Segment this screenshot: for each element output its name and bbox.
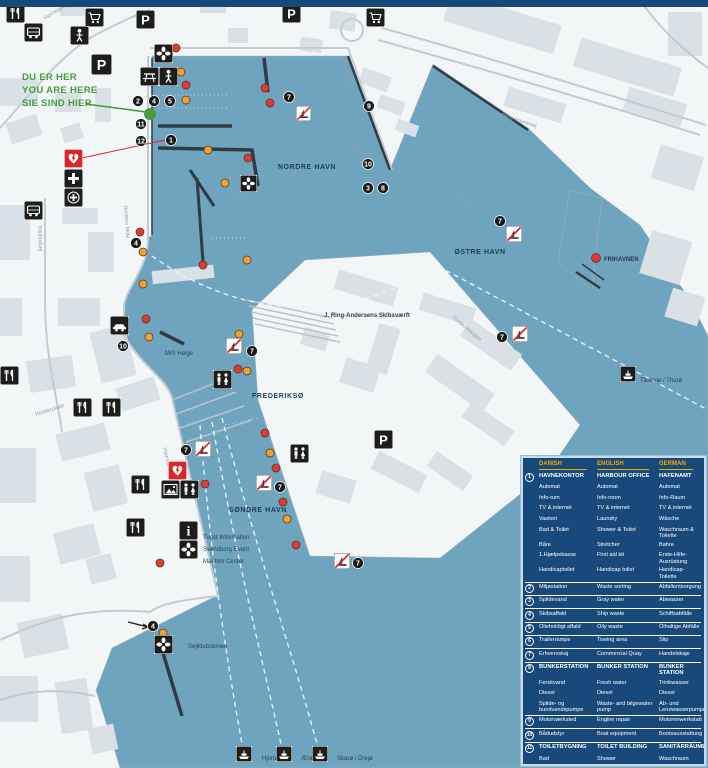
legend-header-german: GERMAN: [659, 461, 693, 470]
legend-row: 1.Hjælpekasse First aid kit Erste-Hilfe-…: [525, 551, 701, 566]
legend-cell-english: Automat: [597, 484, 657, 490]
ferry-icon: [312, 746, 328, 762]
legend-cell-english: HARBOUR OFFICE: [597, 473, 657, 479]
no-mooring-icon: [195, 441, 211, 457]
legend-cell-english: TV & internet: [597, 505, 657, 511]
legend-marker: 6: [525, 637, 534, 646]
legend-cell-english: Waste sorting: [597, 584, 657, 590]
harbour-icon: [240, 175, 257, 192]
legend-cell-german: Info-Raum: [659, 495, 701, 501]
legend-row: 7 Erhvervskaj Commercial Quay Handelskaj…: [525, 649, 701, 662]
legend-row: 1 HAVNEKONTOR HARBOUR OFFICE HAFENAMT: [525, 471, 701, 483]
legend-marker: 4: [525, 611, 534, 620]
marker-4: 4: [131, 238, 142, 249]
legend-row: 10 Bådudstyr Boat equipment Bootsausstat…: [525, 729, 701, 742]
label-tourist-info: Turist Information: [203, 535, 249, 541]
legend-cell-german: BUNKER STATION: [659, 664, 701, 677]
label-bergen: Bergen: [233, 194, 251, 200]
legend-row: Båre Stretcher Bahre: [525, 540, 701, 551]
legend-cell-german: Erste-Hilfe-Ausrüstung: [659, 552, 701, 565]
label-ferry-taasinge: Tåsinge / Thurø: [640, 377, 683, 384]
svg-text:5: 5: [168, 99, 172, 106]
legend-row: 3 Spildevand Gray water Abwasser: [525, 596, 701, 609]
first-aid-icon: [64, 169, 83, 188]
legend-row: 4 Skibsaffald Ship waste Schiffsabfälle: [525, 609, 701, 622]
restaurant-icon: [126, 518, 145, 537]
legend-cell-german: Diesel: [659, 690, 701, 696]
marker-4: 4: [148, 621, 159, 632]
restaurant-icon: [102, 398, 121, 417]
toilets-icon: [290, 444, 309, 463]
aed-icon: [168, 461, 187, 480]
label-ms-helge: M/S Helge: [165, 351, 194, 357]
viewpoint-icon: [161, 480, 180, 499]
legend-row: 9 Motorværksted Engine repair Motorenwer…: [525, 716, 701, 729]
legend-cell-danish: Olieholdigt affald: [539, 624, 595, 630]
svg-text:10: 10: [364, 162, 372, 169]
marker-7: 7: [497, 332, 508, 343]
legend-row: Bad & Toilet Shower & Toilet Waschraum &…: [525, 525, 701, 540]
svg-text:9: 9: [367, 104, 371, 111]
legend-cell-danish: Vaskeri: [539, 516, 595, 522]
marker-12: 12: [136, 136, 147, 147]
legend-cell-danish: Info-rum: [539, 495, 595, 501]
legend-header-danish: DANISH: [539, 461, 587, 470]
legend-cell-german: Ab- und Lenzwasserpumpe: [659, 701, 706, 714]
svg-text:8: 8: [381, 186, 385, 193]
legend-row: Bad Shower Waschraum: [525, 754, 701, 765]
legend-marker: 5: [525, 624, 534, 633]
legend-rows: 1 HAVNEKONTOR HARBOUR OFFICE HAFENAMT Au…: [525, 471, 701, 766]
legend-cell-english: Commercial Quay: [597, 651, 657, 657]
label-nordre-havn: NORDRE HAVN: [278, 164, 336, 171]
marker-4: 4: [149, 96, 160, 107]
legend: DANISH ENGLISH GERMAN 1 HAVNEKONTOR HARB…: [521, 456, 706, 766]
legend-row: Diesel Diesel Diesel: [525, 689, 701, 700]
legend-cell-german: Wäsche: [659, 516, 701, 522]
legend-cell-german: Handelskaje: [659, 651, 701, 657]
pedestrian-icon: [70, 26, 89, 45]
ferry-icon: [236, 746, 252, 762]
svg-text:11: 11: [137, 122, 145, 129]
legend-marker: 11: [525, 744, 534, 753]
legend-marker: 3: [525, 597, 534, 606]
legend-cell-english: Waste- and bilgewater pump: [597, 701, 657, 714]
legend-row: 2 Miljøstation Waste sorting Abfallentso…: [525, 583, 701, 596]
legend-row: Vaskeri Laundry Wäsche: [525, 515, 701, 526]
marker-2: 2: [133, 96, 144, 107]
svg-text:7: 7: [356, 561, 360, 568]
legend-cell-english: Stretcher: [597, 542, 657, 548]
legend-cell-english: TOILET BUILDING: [597, 744, 657, 750]
legend-header-english: ENGLISH: [597, 461, 649, 470]
parking-icon: [374, 430, 393, 449]
legend-cell-german: Handicap-Toilette: [659, 567, 701, 580]
marker-7: 7: [284, 92, 295, 103]
legend-cell-danish: Miljøstation: [539, 584, 595, 590]
svg-text:7: 7: [250, 349, 254, 356]
label-ferry-skaro: Skarø / Drejø: [337, 756, 373, 762]
you-are-here-dot: [144, 108, 156, 120]
label-ferry-aero: Ærø: [301, 756, 313, 762]
legend-cell-german: Slip: [659, 637, 701, 643]
legend-marker: 2: [525, 584, 534, 593]
bus-icon: [24, 201, 43, 220]
label-maritimt-center: Maritimt Center: [203, 559, 244, 565]
legend-header: DANISH ENGLISH GERMAN: [525, 460, 701, 471]
legend-cell-danish: BUNKERSTATION: [539, 664, 595, 670]
legend-cell-german: HAFENAMT: [659, 473, 701, 479]
label-frederikso: FREDERIKSØ: [252, 393, 304, 400]
legend-cell-german: Abwasser: [659, 597, 701, 603]
no-mooring-icon: [296, 106, 311, 121]
bus-icon: [24, 23, 43, 42]
legend-cell-german: Bahre: [659, 542, 701, 548]
legend-cell-german: Trinkwasser: [659, 680, 701, 686]
legend-cell-english: First aid kit: [597, 552, 657, 558]
svg-text:7: 7: [500, 335, 504, 342]
legend-cell-danish: Trailerrampe: [539, 637, 595, 643]
legend-marker: 8: [525, 664, 534, 673]
legend-row: Spilde- og bundvandspumpe Waste- and bil…: [525, 699, 701, 716]
label-skibsvaerft: J. Ring-Andersens Skibsværft: [324, 313, 410, 319]
legend-cell-english: Info-room: [597, 495, 657, 501]
top-bar: [0, 0, 708, 7]
svg-text:10: 10: [119, 344, 127, 351]
no-mooring-icon: [512, 326, 528, 342]
legend-cell-german: Waschraum: [659, 756, 701, 762]
svg-text:12: 12: [137, 139, 145, 146]
marker-10: 10: [118, 341, 129, 352]
picnic-icon: [140, 67, 159, 86]
marker-7: 7: [181, 445, 192, 456]
legend-cell-danish: TOILETBYGNING: [539, 744, 595, 750]
marker-3: 3: [363, 183, 374, 194]
legend-row: Toilet Toilet Toilette: [525, 765, 701, 766]
label-frihavnen: FRIHAVNEN: [604, 257, 639, 263]
legend-row: Handicaptoilet Handicap toilet Handicap-…: [525, 566, 701, 583]
playground-icon: [159, 67, 178, 86]
svg-text:DU ER HER: DU ER HER: [22, 72, 77, 83]
legend-cell-german: Motorenwerkstatt: [659, 717, 702, 723]
svg-text:4: 4: [151, 624, 155, 631]
svg-text:7: 7: [278, 485, 282, 492]
taxi-icon: [110, 316, 129, 335]
svg-text:YOU ARE HERE: YOU ARE HERE: [22, 85, 98, 96]
sailing-club-icon: [154, 635, 173, 654]
legend-marker: 7: [525, 651, 534, 660]
legend-row: Info-rum Info-room Info-Raum: [525, 494, 701, 505]
legend-cell-danish: Båre: [539, 542, 595, 548]
legend-cell-english: Oily waste: [597, 624, 657, 630]
legend-cell-danish: Motorværksted: [539, 717, 595, 723]
svg-text:1: 1: [169, 138, 173, 145]
legend-cell-german: Ölhaltige Abfälle: [659, 624, 701, 630]
legend-row: 5 Olieholdigt affald Oily waste Ölhaltig…: [525, 623, 701, 636]
legend-cell-danish: Handicaptoilet: [539, 567, 595, 573]
marker-7: 7: [275, 482, 286, 493]
label-svendborg-event: Svendborg Event: [203, 547, 249, 553]
legend-cell-danish: HAVNEKONTOR: [539, 473, 595, 479]
legend-marker: 1: [525, 473, 534, 482]
toilets-icon: [213, 370, 232, 389]
svg-text:SIE SIND HIER: SIE SIND HIER: [22, 98, 92, 109]
legend-cell-german: TV & internet: [659, 505, 701, 511]
aed-icon: [64, 149, 83, 168]
legend-cell-german: Waschraum & Toilette: [659, 527, 701, 540]
medical-icon: [64, 188, 83, 207]
marker-7: 7: [495, 216, 506, 227]
marker-5: 5: [165, 96, 176, 107]
legend-row: Automat Automat Automat: [525, 483, 701, 494]
legend-cell-german: SANITÄRRÄUME: [659, 744, 706, 750]
legend-marker: 9: [525, 717, 534, 726]
toilets-icon: [180, 480, 199, 499]
svg-text:7: 7: [498, 219, 502, 226]
marker-8: 8: [378, 183, 389, 194]
legend-cell-danish: Erhvervskaj: [539, 651, 595, 657]
legend-cell-english: BUNKER STATION: [597, 664, 657, 670]
svg-text:2: 2: [136, 99, 140, 106]
maritime-center-icon: [179, 540, 198, 559]
legend-cell-english: Fresh water: [597, 680, 657, 686]
legend-cell-danish: Ferskvand: [539, 680, 595, 686]
svg-text:3: 3: [366, 186, 370, 193]
no-mooring-icon: [506, 226, 522, 242]
svg-text:4: 4: [152, 99, 156, 106]
svg-text:7: 7: [184, 448, 188, 455]
parking-icon: [136, 10, 155, 29]
legend-cell-danish: Diesel: [539, 690, 595, 696]
shopping-cart-icon: [366, 8, 385, 27]
legend-cell-english: Boat equipment: [597, 731, 657, 737]
marker-9: 9: [364, 101, 375, 112]
tourist-info-icon: [179, 521, 198, 540]
restaurant-icon: [73, 398, 92, 417]
legend-cell-english: Laundry: [597, 516, 657, 522]
legend-marker: 10: [525, 731, 534, 740]
legend-cell-danish: Skibsaffald: [539, 611, 595, 617]
marker-7: 7: [247, 346, 258, 357]
shopping-cart-icon: [85, 8, 104, 27]
legend-row: 11 TOILETBYGNING TOILET BUILDING SANITÄR…: [525, 743, 701, 755]
svg-text:7: 7: [287, 95, 291, 102]
marker-1: 1: [166, 135, 177, 146]
legend-cell-english: Towing area: [597, 637, 657, 643]
legend-row: 8 BUNKERSTATION BUNKER STATION BUNKER ST…: [525, 663, 701, 679]
legend-row: TV & internet TV & internet TV & interne…: [525, 504, 701, 515]
legend-row: Ferskvand Fresh water Trinkwasser: [525, 678, 701, 689]
label-sondre-havn: SØNDRE HAVN: [229, 507, 287, 514]
legend-cell-english: Diesel: [597, 690, 657, 696]
legend-cell-english: Handicap toilet: [597, 567, 657, 573]
no-mooring-icon: [226, 338, 242, 354]
legend-cell-danish: Automat: [539, 484, 595, 490]
legend-cell-danish: 1.Hjælpekasse: [539, 552, 595, 558]
legend-cell-german: Abfallentsorgung: [659, 584, 701, 590]
parking-icon: [91, 54, 112, 75]
label-ostre-havn: ØSTRE HAVN: [454, 249, 505, 256]
ferry-icon: [276, 746, 292, 762]
legend-cell-danish: Bad: [539, 756, 595, 762]
marker-7: 7: [353, 558, 364, 569]
no-mooring-icon: [256, 475, 272, 491]
svg-text:Toldbodvej: Toldbodvej: [36, 225, 43, 251]
legend-cell-danish: Bådudstyr: [539, 731, 595, 737]
legend-row: 6 Trailerrampe Towing area Slip: [525, 636, 701, 649]
svg-text:4: 4: [134, 241, 138, 248]
legend-cell-danish: Spilde- og bundvandspumpe: [539, 701, 595, 714]
legend-cell-german: Bootsausstattung: [659, 731, 702, 737]
restaurant-icon: [0, 366, 19, 385]
marker-11: 11: [136, 119, 147, 130]
no-mooring-icon: [334, 553, 350, 569]
legend-cell-danish: TV & internet: [539, 505, 595, 511]
harbour-office-icon: [154, 44, 173, 63]
legend-cell-english: Engine repair: [597, 717, 657, 723]
legend-cell-danish: Bad & Toilet: [539, 527, 595, 533]
legend-cell-english: Shower: [597, 756, 657, 762]
legend-cell-german: Automat: [659, 484, 701, 490]
restaurant-icon: [131, 475, 150, 494]
legend-cell-german: Schiffsabfälle: [659, 611, 701, 617]
ferry-icon: [620, 366, 636, 382]
harbour-map: P i: [0, 0, 708, 768]
legend-cell-english: Gray water: [597, 597, 657, 603]
label-sejlklubsbroen: Sejlklubsbroen: [188, 644, 227, 650]
legend-cell-english: Shower & Toilet: [597, 527, 657, 533]
legend-cell-english: Ship waste: [597, 611, 657, 617]
legend-cell-danish: Spildevand: [539, 597, 595, 603]
marker-10: 10: [363, 159, 374, 170]
